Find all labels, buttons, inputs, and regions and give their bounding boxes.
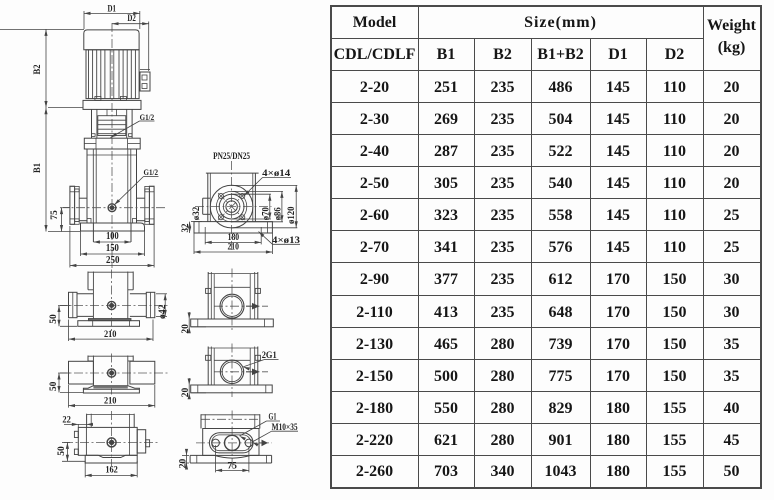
svg-text:20: 20 [177,458,187,468]
svg-text:20: 20 [180,324,190,334]
svg-text:D2: D2 [127,13,136,23]
svg-text:162: 162 [105,465,118,475]
svg-text:B1: B1 [32,163,42,173]
svg-text:B2: B2 [32,64,42,74]
svg-text:ø42: ø42 [157,304,167,319]
svg-text:22: 22 [62,415,71,425]
svg-text:ø32: ø32 [191,206,201,220]
svg-text:100: 100 [106,231,119,242]
svg-text:ø70: ø70 [260,207,270,220]
svg-text:ø120: ø120 [286,206,296,224]
svg-text:250: 250 [106,255,120,266]
svg-text:210: 210 [227,242,239,252]
svg-text:210: 210 [104,330,117,340]
svg-text:20: 20 [180,387,190,397]
svg-text:PN25/DN25: PN25/DN25 [213,151,250,161]
svg-text:50: 50 [48,314,58,324]
svg-text:G1/2: G1/2 [140,112,155,122]
svg-text:75: 75 [227,461,237,471]
svg-text:75: 75 [49,210,59,220]
svg-text:50: 50 [56,446,66,456]
svg-text:150: 150 [106,243,119,254]
svg-text:D1: D1 [107,3,116,13]
svg-text:2G1: 2G1 [262,350,277,360]
svg-text:50: 50 [48,381,58,391]
svg-text:4×ø14: 4×ø14 [262,168,291,178]
svg-text:ø86: ø86 [272,207,282,220]
svg-text:210: 210 [104,397,117,407]
svg-text:G1: G1 [269,412,277,422]
svg-text:4×ø13: 4×ø13 [272,235,301,245]
svg-text:G1/2: G1/2 [144,167,159,177]
svg-text:180: 180 [228,233,240,243]
svg-text:32: 32 [180,223,190,233]
svg-text:M10×35: M10×35 [272,422,298,432]
